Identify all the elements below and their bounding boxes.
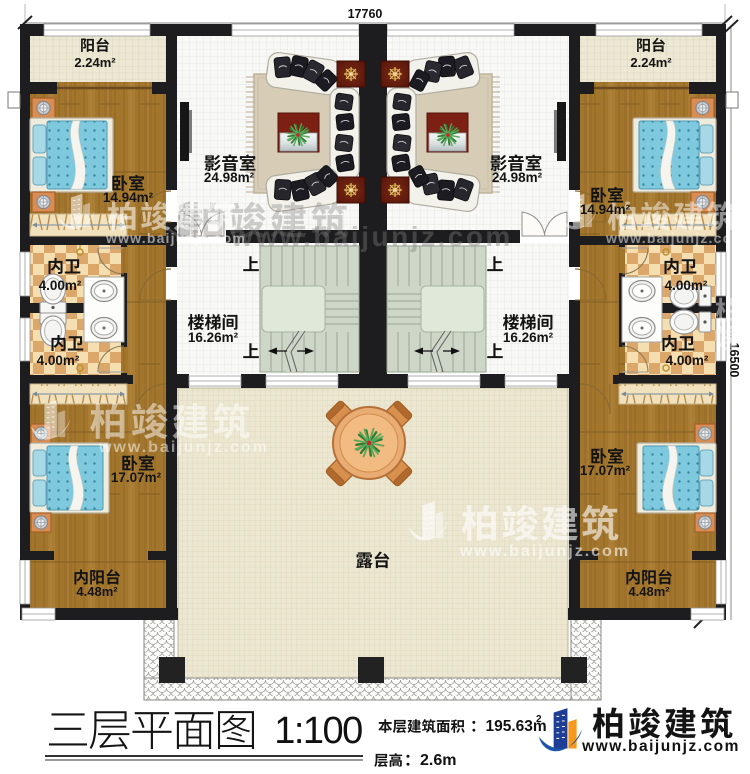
svg-text:1:100: 1:100: [274, 710, 362, 752]
svg-text:24.98m²: 24.98m²: [492, 170, 543, 185]
svg-text:www.baijunjz.com: www.baijunjz.com: [581, 738, 740, 755]
svg-text:17760: 17760: [348, 7, 383, 21]
svg-text:www.baijunjz.com: www.baijunjz.com: [459, 543, 630, 560]
svg-text:www.baijunjz.com: www.baijunjz.com: [98, 439, 269, 456]
svg-text:4.00m²: 4.00m²: [39, 278, 82, 293]
svg-text:2.24m²: 2.24m²: [74, 55, 116, 70]
svg-text:4.00m²: 4.00m²: [665, 278, 708, 293]
svg-text:4.00m²: 4.00m²: [666, 353, 709, 368]
svg-text:2.24m²: 2.24m²: [630, 55, 672, 70]
svg-text:4.48m²: 4.48m²: [76, 584, 118, 599]
svg-text:17.07m²: 17.07m²: [580, 463, 631, 478]
svg-text:17.07m²: 17.07m²: [111, 470, 162, 485]
svg-text:4.48m²: 4.48m²: [628, 584, 670, 599]
svg-text:16.26m²: 16.26m²: [188, 330, 239, 345]
svg-text:2: 2: [536, 714, 542, 725]
svg-text:www.baijunjz.com: www.baijunjz.com: [230, 221, 513, 252]
svg-text:14.94m²: 14.94m²: [580, 202, 631, 217]
svg-text:16.26m²: 16.26m²: [503, 330, 554, 345]
svg-text:24.98m²: 24.98m²: [204, 170, 255, 185]
svg-text:www.baijunjz.com: www.baijunjz.com: [605, 230, 746, 246]
svg-text:：2.6m: ：2.6m: [404, 752, 456, 769]
svg-text:4.00m²: 4.00m²: [37, 353, 80, 368]
svg-text:www.baijunjz.com: www.baijunjz.com: [105, 230, 246, 246]
svg-text:14.94m²: 14.94m²: [103, 190, 154, 205]
